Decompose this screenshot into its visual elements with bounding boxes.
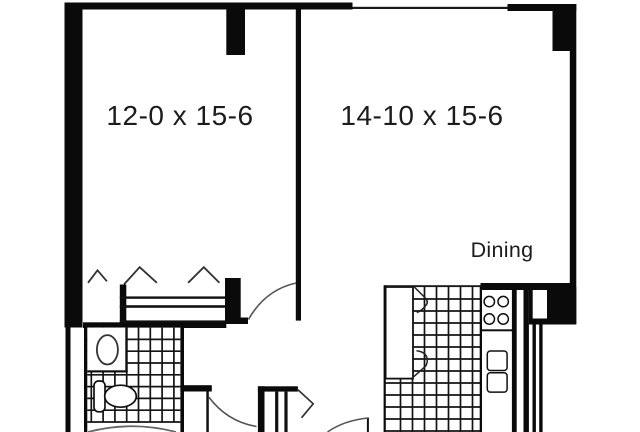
svg-text:Dining: Dining xyxy=(471,238,534,262)
svg-text:14-10 x 15-6: 14-10 x 15-6 xyxy=(340,100,503,131)
svg-text:12-0 x 15-6: 12-0 x 15-6 xyxy=(106,100,253,131)
